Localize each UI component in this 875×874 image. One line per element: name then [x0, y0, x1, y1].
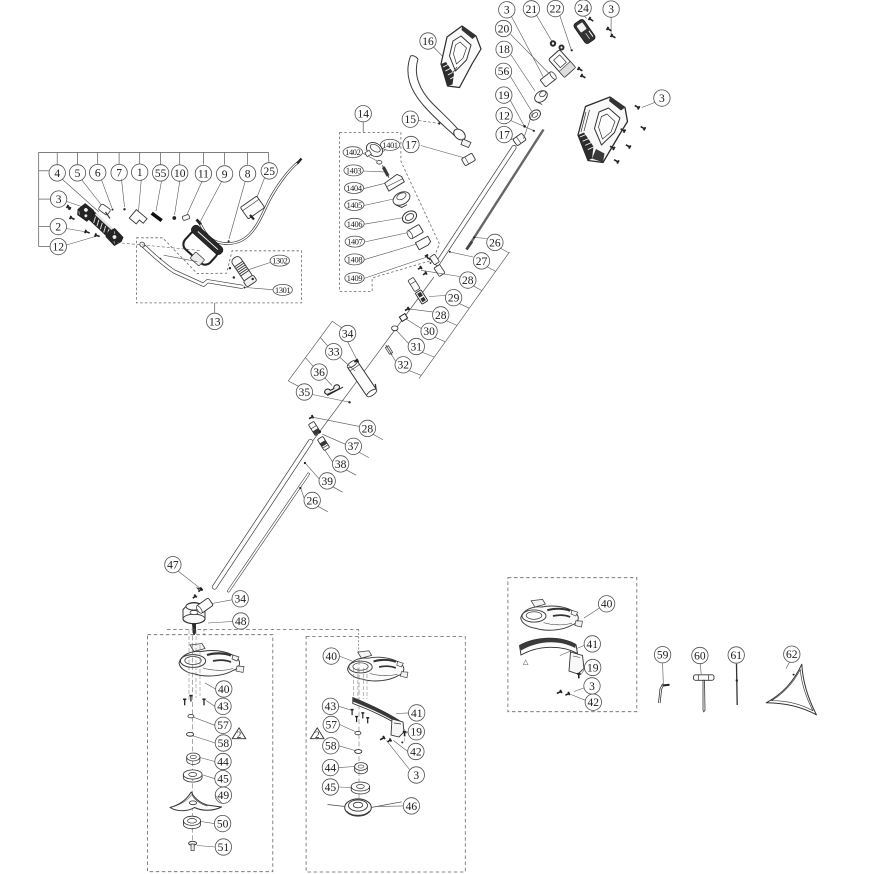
svg-text:39: 39 — [321, 476, 333, 488]
svg-text:34: 34 — [234, 594, 246, 606]
svg-text:8: 8 — [245, 169, 251, 181]
svg-text:47: 47 — [167, 560, 179, 572]
svg-text:22: 22 — [550, 4, 562, 16]
svg-text:45: 45 — [217, 774, 229, 786]
svg-text:46: 46 — [406, 801, 418, 813]
svg-text:7: 7 — [116, 168, 122, 180]
svg-text:9: 9 — [222, 169, 228, 181]
svg-text:2: 2 — [237, 730, 242, 740]
svg-text:24: 24 — [577, 3, 589, 15]
svg-text:△: △ — [523, 659, 529, 666]
svg-text:4: 4 — [54, 168, 60, 180]
svg-text:1: 1 — [137, 167, 143, 179]
svg-text:60: 60 — [694, 650, 706, 662]
svg-text:1405: 1405 — [347, 201, 363, 210]
svg-text:3: 3 — [504, 5, 510, 17]
svg-text:19: 19 — [587, 662, 599, 674]
svg-text:45: 45 — [325, 782, 337, 794]
svg-text:35: 35 — [299, 387, 311, 399]
svg-text:14: 14 — [357, 109, 369, 121]
svg-text:51: 51 — [218, 842, 230, 854]
svg-text:1409: 1409 — [347, 274, 363, 283]
svg-text:3: 3 — [589, 681, 595, 693]
svg-text:31: 31 — [411, 341, 423, 353]
svg-text:10: 10 — [174, 168, 186, 180]
svg-text:44: 44 — [325, 763, 337, 775]
svg-text:30: 30 — [423, 326, 435, 338]
svg-text:57: 57 — [217, 720, 229, 732]
svg-text:25: 25 — [263, 166, 275, 178]
svg-text:15: 15 — [405, 114, 417, 126]
svg-text:17: 17 — [405, 139, 417, 151]
svg-text:2: 2 — [55, 222, 61, 234]
svg-text:1407: 1407 — [347, 238, 363, 247]
svg-text:61: 61 — [730, 650, 742, 662]
svg-text:28: 28 — [462, 275, 474, 287]
svg-text:48: 48 — [235, 616, 247, 628]
svg-text:40: 40 — [218, 684, 230, 696]
svg-text:56: 56 — [498, 66, 510, 78]
svg-text:59: 59 — [657, 650, 669, 662]
svg-text:3: 3 — [659, 93, 665, 105]
svg-text:57: 57 — [325, 719, 337, 731]
svg-text:42: 42 — [410, 746, 422, 758]
svg-text:28: 28 — [362, 423, 374, 435]
svg-text:18: 18 — [498, 44, 510, 56]
svg-text:33: 33 — [328, 347, 340, 359]
svg-text:41: 41 — [411, 708, 423, 720]
svg-text:38: 38 — [335, 459, 347, 471]
svg-text:55: 55 — [155, 168, 167, 180]
svg-text:1401: 1401 — [382, 141, 398, 150]
svg-text:37: 37 — [348, 441, 360, 453]
svg-text:26: 26 — [306, 495, 318, 507]
svg-text:43: 43 — [325, 701, 337, 713]
svg-text:29: 29 — [448, 293, 460, 305]
svg-text:2: 2 — [315, 730, 320, 740]
svg-text:11: 11 — [198, 169, 209, 181]
svg-text:21: 21 — [526, 4, 538, 16]
svg-text:27: 27 — [476, 256, 488, 268]
svg-text:62: 62 — [786, 649, 798, 661]
svg-text:44: 44 — [217, 756, 229, 768]
svg-text:20: 20 — [498, 23, 510, 35]
svg-text:3: 3 — [608, 4, 614, 16]
svg-text:36: 36 — [313, 367, 325, 379]
svg-text:58: 58 — [218, 738, 230, 750]
svg-text:58: 58 — [325, 741, 337, 753]
svg-text:40: 40 — [601, 599, 613, 611]
svg-text:3: 3 — [413, 770, 419, 782]
svg-text:32: 32 — [397, 360, 409, 372]
svg-text:5: 5 — [75, 168, 81, 180]
svg-text:42: 42 — [588, 697, 600, 709]
svg-text:12: 12 — [53, 242, 65, 254]
svg-text:19: 19 — [498, 90, 510, 102]
svg-text:16: 16 — [422, 36, 434, 48]
svg-text:6: 6 — [95, 168, 101, 180]
svg-text:26: 26 — [489, 237, 501, 249]
svg-text:1403: 1403 — [346, 166, 362, 175]
svg-text:43: 43 — [217, 701, 229, 713]
svg-text:1402: 1402 — [345, 148, 361, 157]
svg-text:1406: 1406 — [347, 220, 363, 229]
svg-text:1302: 1302 — [272, 257, 288, 266]
svg-text:50: 50 — [217, 819, 229, 831]
svg-text:3: 3 — [56, 194, 62, 206]
svg-text:13: 13 — [209, 316, 221, 328]
svg-text:1404: 1404 — [346, 184, 363, 193]
svg-text:19: 19 — [411, 727, 423, 739]
svg-text:41: 41 — [587, 639, 599, 651]
svg-text:1408: 1408 — [347, 255, 363, 264]
svg-text:40: 40 — [325, 651, 337, 663]
svg-text:12: 12 — [498, 111, 510, 123]
svg-text:17: 17 — [498, 130, 510, 142]
svg-text:1301: 1301 — [275, 286, 291, 295]
svg-text:28: 28 — [435, 310, 447, 322]
svg-text:34: 34 — [342, 328, 354, 340]
